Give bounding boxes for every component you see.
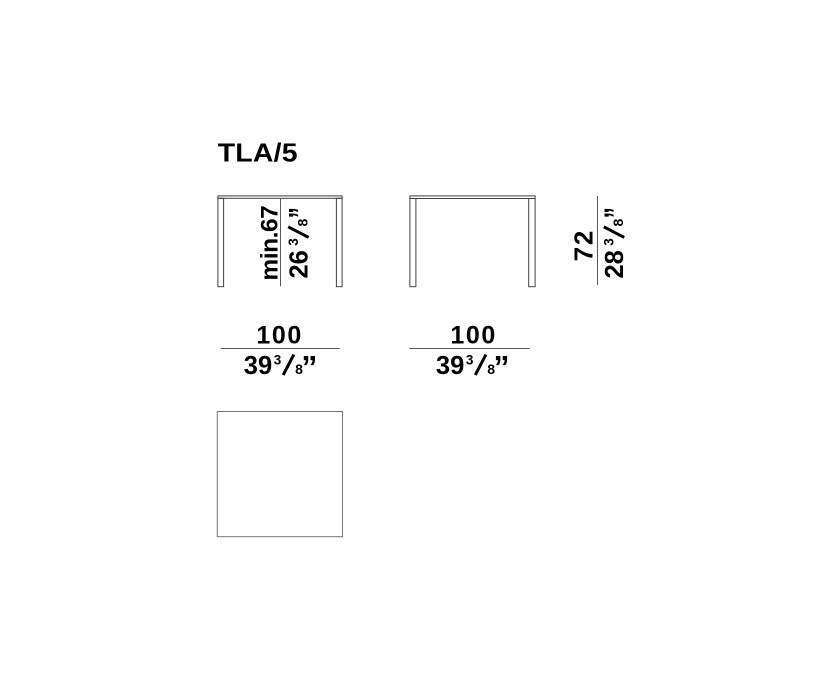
svg-text:”: ” [494,349,510,385]
svg-text:72: 72 [568,229,598,262]
svg-text:28: 28 [601,250,629,278]
svg-text:39: 39 [244,352,272,380]
svg-text:3: 3 [466,352,474,367]
svg-text:”: ” [282,207,318,218]
svg-text:3: 3 [602,238,617,246]
svg-text:”: ” [301,349,317,385]
svg-text:3: 3 [274,352,282,367]
svg-text:min.67: min.67 [257,206,284,281]
svg-text:39: 39 [436,352,464,380]
svg-text:”: ” [598,207,634,218]
svg-text:3: 3 [286,238,301,246]
svg-text:26: 26 [285,250,313,278]
svg-text:TLA/5: TLA/5 [218,137,298,167]
svg-text:8: 8 [294,219,310,227]
svg-text:100: 100 [256,321,303,349]
svg-text:8: 8 [610,219,626,227]
svg-text:100: 100 [450,321,497,349]
